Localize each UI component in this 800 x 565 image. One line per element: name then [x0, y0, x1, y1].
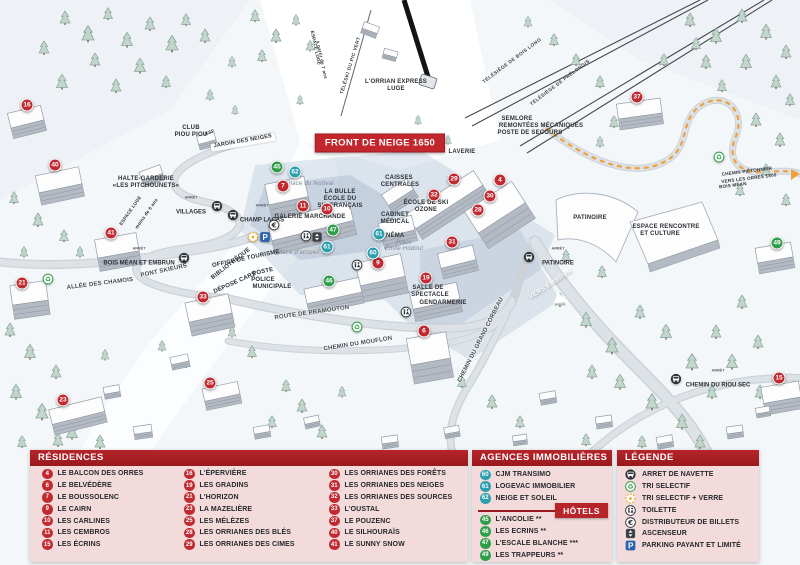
legend-item: TOILETTE [625, 504, 741, 516]
glass-recycle-icon [248, 232, 259, 243]
map-marker-46: 46 [323, 275, 336, 288]
legend-panel-residences: RÉSIDENCES 4LE BALCON DES ORRES6LE BELVÉ… [30, 450, 468, 562]
map-label: PATINOIRE [573, 215, 607, 221]
map-label: Place d'accueil [277, 250, 320, 256]
map-marker-10: 10 [321, 203, 334, 216]
toilet-icon [301, 231, 312, 242]
map-marker-31: 31 [446, 236, 459, 249]
map-label: GENDARMERIE [419, 300, 466, 306]
marker-badge: 32 [329, 492, 340, 503]
map-label: HALTE-GARDERIE [118, 176, 174, 182]
marker-badge: 33 [329, 504, 340, 515]
marker-badge: 4 [42, 469, 53, 480]
bus-stop-prefix: ARRÊT [103, 248, 174, 252]
map-label: POLICE [251, 277, 275, 283]
legend-item: 47L'ESCALE BLANCHE *** [480, 538, 578, 550]
legend-item-label: PARKING PAYANT ET LIMITÉ [642, 542, 741, 549]
legend-item-label: LES ORRIANES DES BLÉS [200, 529, 292, 536]
marker-badge: 9 [42, 504, 53, 515]
bus-stop-prefix: ARRÊT [176, 197, 206, 201]
parking-icon: P [260, 232, 271, 243]
bus-stop-icon [179, 253, 190, 264]
legend-item: 45L'ANCOLIE ** [480, 514, 578, 526]
legend-panel-legende: LÉGENDE ARRET DE NAVETTE♻TRI SELECTIFTRI… [617, 450, 759, 562]
bus-stop-prefix: ARRÊT [240, 205, 284, 209]
residences-column-3: 30LES ORRIANES DES FORÊTS31LES ORRIANES … [329, 468, 452, 551]
bus-stop-name: PATINOIRE [542, 260, 574, 266]
residences-column-2: 16L'ÉPERVIÈRE19LES GRADINS21L'HORIZON23L… [184, 468, 295, 551]
map-label: LAVERIE [449, 149, 476, 155]
legend-item-label: LES ORRIANES DES FORÊTS [345, 470, 446, 477]
legend-panel-agences: AGENCES IMMOBILIÈRES 60CJM TRANSIMO61LOG… [472, 450, 612, 562]
toilet-icon [625, 505, 636, 516]
front-de-neige-banner: FRONT DE NEIGE 1650 [315, 134, 445, 153]
map-marker-19: 19 [420, 272, 433, 285]
marker-badge: 16 [184, 469, 195, 480]
euro-atm-icon: € [269, 220, 280, 231]
map-marker-41: 41 [105, 227, 118, 240]
map-label: ET CULTURE [640, 231, 680, 237]
marker-badge: 25 [184, 516, 195, 527]
marker-badge: 10 [42, 516, 53, 527]
agences-list: 60CJM TRANSIMO61LOGEVAC IMMOBILIER62NEIG… [480, 469, 575, 504]
marker-badge: 29 [184, 539, 195, 550]
legend-item: 16L'ÉPERVIÈRE [184, 468, 295, 480]
marker-badge: 45 [480, 515, 491, 526]
toilet-icon [352, 260, 363, 271]
legend-item-label: NEIGE ET SOLEIL [496, 495, 557, 502]
map-label: Place du festival [286, 181, 333, 187]
map-marker-37: 37 [631, 91, 644, 104]
agences-header: AGENCES IMMOBILIÈRES [472, 450, 612, 466]
bus-stop-prefix: ARRÊT [686, 370, 751, 374]
marker-badge: 60 [480, 470, 491, 481]
bus-stop-label: ARRÊTPATINOIRE [542, 248, 574, 269]
map-marker-33: 33 [197, 291, 210, 304]
marker-badge: 47 [480, 538, 491, 549]
legend-item: 32LES ORRIANES DES SOURCES [329, 492, 452, 504]
map-label: GALERIE MARCHANDE [274, 214, 345, 220]
bus-stop-name: VILLAGES [176, 209, 206, 215]
marker-badge: 23 [184, 504, 195, 515]
map-marker-21: 21 [16, 277, 29, 290]
map-label: LA BULLE [324, 189, 355, 195]
legend-item: 28LES ORRIANES DES BLÉS [184, 527, 295, 539]
marker-badge: 30 [329, 469, 340, 480]
marker-badge: 61 [480, 481, 491, 492]
elevator-icon [625, 528, 636, 539]
map-label: MUNICIPALE [253, 284, 292, 290]
svg-text:€: € [627, 518, 633, 527]
legend-item-label: LES TRAPPEURS ** [496, 552, 564, 559]
recycle-icon: ♻ [352, 322, 363, 333]
legend-item-label: LE SILHOURAÏS [345, 529, 400, 536]
map-marker-28: 28 [472, 204, 485, 217]
map-label: MÉDICAL [381, 219, 410, 225]
legende-list: ARRET DE NAVETTE♻TRI SELECTIFTRI SELECTI… [625, 469, 741, 552]
legend-item: 15LES ÉCRINS [42, 539, 143, 551]
map-marker-25: 25 [204, 377, 217, 390]
legend-item-label: L'HORIZON [200, 494, 239, 501]
map-label: CAISSES [385, 175, 413, 181]
legend-item: PPARKING PAYANT ET LIMITÉ [625, 540, 741, 552]
map-marker-49: 49 [771, 237, 784, 250]
marker-badge: 62 [480, 493, 491, 504]
map-label: L'ORRIAN EXPRESS [365, 79, 427, 85]
marker-badge: 31 [329, 480, 340, 491]
map-label: CLUB [182, 125, 199, 131]
legend-item: 4LE BALCON DES ORRES [42, 468, 143, 480]
bus-stop-icon [671, 374, 682, 385]
residences-column-1: 4LE BALCON DES ORRES6LE BELVÉDÈRE7LE BOU… [42, 468, 143, 551]
legend-item: ♻TRI SELECTIF [625, 481, 741, 493]
map-label: CENTRALES [381, 182, 419, 188]
map-marker-60: 60 [367, 247, 380, 260]
legend-item-label: LE BOUSSOLENC [58, 494, 120, 501]
svg-text:€: € [270, 221, 276, 230]
legend-item: 61LOGEVAC IMMOBILIER [480, 481, 575, 493]
bus-icon [625, 469, 636, 480]
legend-item: 46LES ECRINS ** [480, 526, 578, 538]
legend-item-label: LES ORRIANES DES CIMES [200, 541, 295, 548]
map-marker-61: 61 [373, 228, 386, 241]
map-marker-7: 7 [277, 180, 290, 193]
marker-badge: 46 [480, 526, 491, 537]
map-label: OZONE [415, 207, 437, 213]
legend-item-label: LE BELVÉDÈRE [58, 482, 112, 489]
map-marker-15: 15 [773, 372, 786, 385]
map-label: ÉCOLE DU [324, 196, 357, 202]
legend-item-label: TOILETTE [642, 507, 677, 514]
legend-item-label: LES CARLINES [58, 518, 111, 525]
residences-header: RÉSIDENCES [30, 450, 468, 466]
bus-stop-name: BOIS MÉAN ET EMBRUN [103, 260, 174, 266]
map-label: SPECTACLE [411, 292, 449, 298]
bus-stop-icon [228, 210, 239, 221]
marker-badge: 40 [329, 528, 340, 539]
map-label: REMONTÉES MÉCANIQUES [499, 123, 583, 129]
map-marker-32: 32 [428, 189, 441, 202]
legend-item: €DISTRIBUTEUR DE BILLETS [625, 516, 741, 528]
map-label: ESPACE RENCONTRE [632, 224, 699, 230]
legend-item-label: CJM TRANSIMO [496, 471, 551, 478]
marker-badge: 41 [329, 539, 340, 550]
marker-badge: 11 [42, 528, 53, 539]
map-label: LUGE [387, 86, 404, 92]
svg-text:P: P [628, 542, 634, 551]
map-marker-40: 40 [49, 159, 62, 172]
euro-atm-icon: € [625, 517, 636, 528]
legend-item-label: LA MAZELIÈRE [200, 506, 253, 513]
map-marker-11: 11 [297, 200, 310, 213]
map-marker-61: 61 [321, 241, 334, 254]
legend-item-label: LES ORRIANES DES SOURCES [345, 494, 453, 501]
legend-item: 6LE BELVÉDÈRE [42, 480, 143, 492]
toilet-icon [401, 307, 412, 318]
map-marker-29: 29 [448, 173, 461, 186]
legend-item-label: LE POUZENC [345, 518, 391, 525]
glass-recycle-icon [625, 493, 636, 504]
legend-item-label: LES GRADINS [200, 482, 249, 489]
hotels-list: 45L'ANCOLIE **46LES ECRINS **47L'ESCALE … [480, 514, 578, 561]
legend-item: 40LE SILHOURAÏS [329, 527, 452, 539]
marker-badge: 7 [42, 492, 53, 503]
map-label: POSTE DE SECOURS [498, 130, 563, 136]
legend-item: 60CJM TRANSIMO [480, 469, 575, 481]
svg-text:♻: ♻ [716, 153, 722, 161]
map-label: Émile Hodoul [385, 246, 423, 252]
legend-item-label: ASCENSEUR [642, 530, 687, 537]
marker-badge: 28 [184, 528, 195, 539]
legend-item: TRI SELECTIF + VERRE [625, 493, 741, 505]
parking-icon: P [625, 540, 636, 551]
bus-stop-icon [524, 252, 535, 263]
map-marker-23: 23 [57, 394, 70, 407]
legend-item: 11LES CEMBROS [42, 527, 143, 539]
legend-item-label: LE CAIRN [58, 506, 92, 513]
legend-item: 37LE POUZENC [329, 515, 452, 527]
legend-item-label: LES ORRIANES DES NEIGES [345, 482, 445, 489]
map-marker-30: 30 [484, 190, 497, 203]
resort-map-page: FRONT DE NEIGE 1650 HALTE-GARDERIE«LES P… [0, 0, 800, 565]
map-label: SALLE DE [412, 285, 443, 291]
legend-item: 29LES ORRIANES DES CIMES [184, 539, 295, 551]
legende-header: LÉGENDE [617, 450, 759, 466]
bus-stop-name: CHEMIN DU RIOU SEC [686, 382, 751, 388]
map-marker-62: 62 [289, 166, 302, 179]
marker-badge: 49 [480, 550, 491, 561]
legend-item: 30LES ORRIANES DES FORÊTS [329, 468, 452, 480]
legend-item: 9LE CAIRN [42, 503, 143, 515]
legend-item: ASCENSEUR [625, 528, 741, 540]
legend-item-label: LES CEMBROS [58, 529, 110, 536]
map-marker-4: 4 [494, 174, 507, 187]
legend-item-label: L'ESCALE BLANCHE *** [496, 540, 579, 547]
marker-badge: 15 [42, 539, 53, 550]
legend-item-label: L'ANCOLIE ** [496, 516, 542, 523]
legend-item: 21L'HORIZON [184, 492, 295, 504]
legend-item: 41LE SUNNY SNOW [329, 539, 452, 551]
bus-stop-prefix: ARRÊT [542, 248, 574, 252]
marker-badge: 19 [184, 480, 195, 491]
legend-item-label: ARRET DE NAVETTE [642, 471, 713, 478]
legend-item: ARRET DE NAVETTE [625, 469, 741, 481]
legend-item-label: LE SUNNY SNOW [345, 541, 405, 548]
legend-item-label: L'OUSTAL [345, 506, 380, 513]
legend-item: 31LES ORRIANES DES NEIGES [329, 480, 452, 492]
legend-item-label: L'ÉPERVIÈRE [200, 470, 247, 477]
marker-badge: 6 [42, 480, 53, 491]
svg-text:♻: ♻ [627, 483, 633, 491]
bus-stop-label: ARRÊTVILLAGES [176, 197, 206, 218]
bus-stop-icon [212, 201, 223, 212]
map-marker-16: 16 [21, 99, 34, 112]
elevator-icon [312, 232, 323, 243]
map-marker-6: 6 [418, 325, 431, 338]
legend-item-label: LOGEVAC IMMOBILIER [496, 483, 576, 490]
svg-text:P: P [262, 233, 268, 242]
legend-item-label: LES MÉLÈZES [200, 518, 250, 525]
bus-stop-label: ARRÊTBOIS MÉAN ET EMBRUN [103, 248, 174, 269]
legend-item: 19LES GRADINS [184, 480, 295, 492]
legend-item-label: TRI SELECTIF + VERRE [642, 495, 723, 502]
marker-badge: 37 [329, 516, 340, 527]
legend-item-label: LES ECRINS ** [496, 528, 547, 535]
svg-text:♻: ♻ [354, 323, 360, 331]
legend-item-label: LE BALCON DES ORRES [58, 470, 144, 477]
map-label: PIOU PIOU [175, 132, 208, 138]
bus-stop-label: ARRÊTCHEMIN DU RIOU SEC [686, 370, 751, 391]
map-marker-45: 45 [271, 161, 284, 174]
recycle-icon: ♻ [625, 481, 636, 492]
legend-item: 49LES TRAPPEURS ** [480, 549, 578, 561]
map-label: «LES PITCHOUNETS» [113, 183, 179, 189]
map-label: CABINET [381, 212, 409, 218]
legend-item: 23LA MAZELIÈRE [184, 503, 295, 515]
svg-text:♻: ♻ [45, 275, 51, 283]
map-marker-47: 47 [327, 224, 340, 237]
legend-item-label: LES ÉCRINS [58, 541, 101, 548]
legend-item-label: DISTRIBUTEUR DE BILLETS [642, 519, 739, 526]
legend-item: 33L'OUSTAL [329, 503, 452, 515]
legend-item: 7LE BOUSSOLENC [42, 492, 143, 504]
marker-badge: 21 [184, 492, 195, 503]
recycle-icon: ♻ [714, 152, 725, 163]
legend-item: 10LES CARLINES [42, 515, 143, 527]
map-label: ÉCOLE DE SKI [404, 200, 449, 206]
recycle-icon: ♻ [43, 274, 54, 285]
map-label: SEMLORE [501, 116, 532, 122]
legend-item: 25LES MÉLÈZES [184, 515, 295, 527]
legend-item-label: TRI SELECTIF [642, 483, 690, 490]
